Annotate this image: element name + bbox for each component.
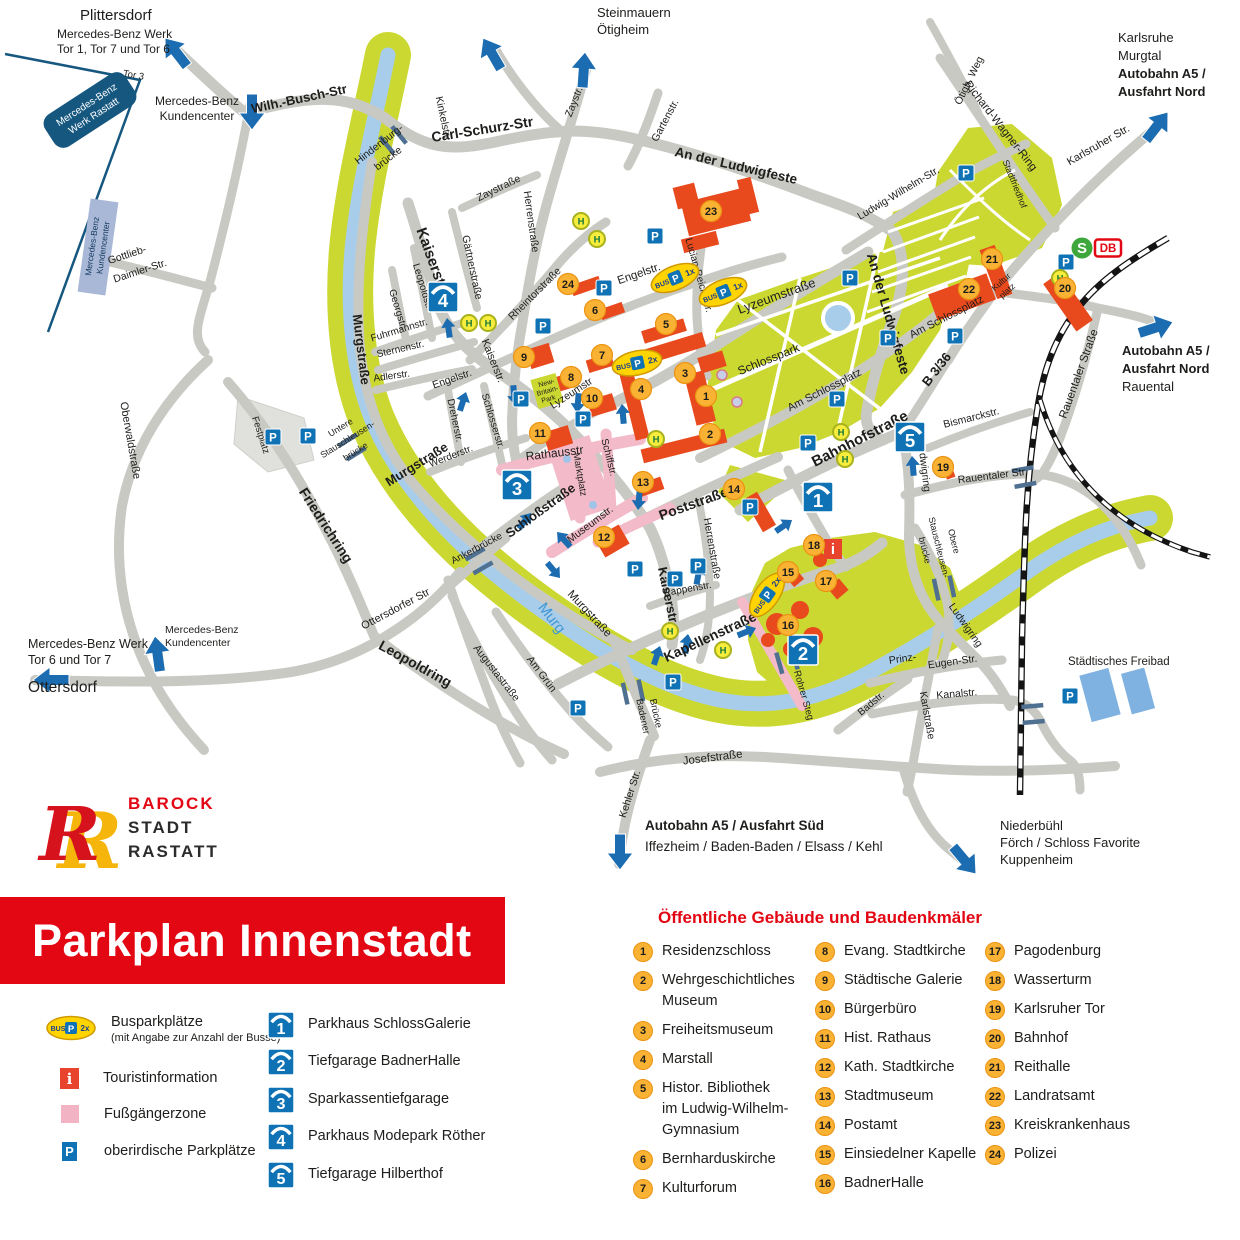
building-badge: 12	[815, 1058, 835, 1078]
building-item-10: 10Bürgerbüro	[815, 999, 1010, 1020]
garage-legend-label: Parkhaus SchlossGalerie	[308, 1016, 471, 1032]
bus-stop-icon: H	[833, 424, 849, 440]
destination-label: NiederbühlFörch / Schloss FavoriteKuppen…	[1000, 818, 1140, 867]
svg-text:17: 17	[820, 576, 832, 588]
poi-marker-14: 14	[724, 479, 745, 500]
building-badge: 9	[815, 971, 835, 991]
garage-legend-row-1: 1Parkhaus SchlossGalerie	[266, 1005, 485, 1043]
oneway-arrow	[772, 514, 796, 537]
svg-text:1: 1	[277, 1020, 286, 1038]
street-label: Josefstraße	[682, 748, 743, 767]
building-badge: 5	[633, 1079, 653, 1099]
building-badge: 24	[985, 1145, 1005, 1165]
svg-text:6: 6	[592, 305, 598, 317]
building-label: Kulturforum	[662, 1178, 737, 1199]
street-label: Oberwaldstraße	[117, 401, 142, 480]
oneway-arrow	[542, 558, 566, 582]
surface-parking-label: oberirdische Parkplätze	[104, 1143, 256, 1159]
garage-icon-2: 2	[788, 635, 818, 665]
svg-text:23: 23	[705, 206, 717, 218]
bus-stop-icon: H	[461, 315, 477, 331]
svg-text:P: P	[631, 565, 639, 577]
building-item-21: 21Reithalle	[985, 1057, 1195, 1078]
svg-text:4: 4	[277, 1132, 286, 1150]
svg-text:P: P	[651, 232, 659, 244]
svg-text:11: 11	[534, 428, 546, 440]
building-label: Bahnhof	[1014, 1028, 1068, 1049]
building-label: Histor. Bibliothekim Ludwig-Wilhelm-Gymn…	[662, 1078, 789, 1141]
svg-text:15: 15	[782, 567, 794, 579]
building-label: Städtische Galerie	[844, 970, 962, 991]
building-item-12: 12Kath. Stadtkirche	[815, 1057, 1010, 1078]
garage-icon-2: 2	[268, 1049, 294, 1075]
garage-icon-5: 5	[266, 1158, 296, 1190]
parking-icon: P	[570, 700, 586, 716]
svg-text:P: P	[884, 334, 892, 346]
garage-icon-3: 3	[268, 1087, 294, 1113]
building-badge: 18	[985, 971, 1005, 991]
building-badge: 20	[985, 1029, 1005, 1049]
svg-text:P: P	[1062, 258, 1070, 270]
building-item-7: 7Kulturforum	[633, 1178, 838, 1199]
tourist-info-label: Touristinformation	[103, 1070, 217, 1086]
svg-text:H: H	[653, 435, 660, 446]
building-label: Marstall	[662, 1049, 713, 1070]
poi-marker-8: 8	[561, 367, 582, 388]
svg-text:22: 22	[963, 284, 975, 296]
building-label: Kreiskrankenhaus	[1014, 1115, 1130, 1136]
svg-text:5: 5	[905, 430, 915, 451]
surface-parking-icon: P	[62, 1142, 77, 1161]
legend-touristinformation: i Touristinformation	[60, 1068, 217, 1089]
garage-icon-4: 4	[268, 1124, 294, 1150]
building-label: Landratsamt	[1014, 1086, 1095, 1107]
street-label: Obere	[946, 528, 962, 555]
svg-text:24: 24	[562, 279, 575, 291]
building-label: Hist. Rathaus	[844, 1028, 931, 1049]
building-item-19: 19Karlsruher Tor	[985, 999, 1195, 1020]
svg-text:16: 16	[782, 620, 794, 632]
garage-icon-5: 5	[895, 422, 925, 452]
building-label: WehrgeschichtlichesMuseum	[662, 970, 795, 1012]
parking-icon: P	[265, 429, 281, 445]
garage-icon-3: 3	[266, 1083, 296, 1115]
schlosspark-pond	[823, 303, 853, 333]
svg-text:3: 3	[682, 368, 688, 380]
poi-marker-16: 16	[778, 615, 799, 636]
bus-parking-sublabel: (mit Angabe zur Anzahl der Busse)	[111, 1032, 280, 1044]
poi-marker-11: 11	[530, 423, 551, 444]
building-label: Postamt	[844, 1115, 897, 1136]
svg-text:14: 14	[728, 484, 741, 496]
building-item-24: 24Polizei	[985, 1144, 1195, 1165]
svg-text:1: 1	[813, 490, 823, 511]
logo-r-red: R	[37, 792, 101, 878]
svg-text:BUS: BUS	[51, 1026, 66, 1033]
parking-icon: P	[958, 165, 974, 181]
svg-text:H: H	[720, 646, 727, 657]
bus-stop-icon: H	[480, 315, 496, 331]
building-badge: 22	[985, 1087, 1005, 1107]
building-label: Stadtmuseum	[844, 1086, 933, 1107]
poi-marker-2: 2	[700, 424, 721, 445]
garage-icon-5: 5	[268, 1162, 294, 1188]
bus-stop-icon: H	[715, 642, 731, 658]
svg-text:H: H	[838, 428, 845, 439]
building-item-5: 5Histor. Bibliothekim Ludwig-Wilhelm-Gym…	[633, 1078, 838, 1141]
parking-icon: P	[627, 561, 643, 577]
building-item-14: 14Postamt	[815, 1115, 1010, 1136]
poi-marker-9: 9	[514, 347, 535, 368]
db-icon: DB	[1095, 240, 1121, 257]
svg-text:21: 21	[986, 254, 998, 266]
street-label: Kehler Str.	[617, 769, 644, 819]
building-item-11: 11Hist. Rathaus	[815, 1028, 1010, 1049]
buildings-legend-title: Öffentliche Gebäude und Baudenkmäler	[658, 908, 982, 928]
poi-marker-24: 24	[558, 274, 579, 295]
building-item-22: 22Landratsamt	[985, 1086, 1195, 1107]
building-badge: 7	[633, 1179, 653, 1199]
parking-icon: P	[880, 330, 896, 346]
building-label: Freiheitsmuseum	[662, 1020, 773, 1041]
building-badge: 4	[633, 1050, 653, 1070]
destination-label: Mercedes-Benz WerkTor 1, Tor 7 und Tor 6	[57, 27, 173, 56]
street-label: Zaystr.	[563, 85, 586, 119]
garage-icon-2: 2	[266, 1045, 296, 1077]
buildings-col2: 8Evang. Stadtkirche9Städtische Galerie10…	[815, 941, 1010, 1202]
garage-legend-row-2: 2Tiefgarage BadnerHalle	[266, 1043, 485, 1081]
legend-oberirdische-parkplaetze: P oberirdische Parkplätze	[62, 1142, 256, 1161]
garage-icon-1: 1	[803, 482, 833, 512]
street-label: Wilh.-Busch-Str	[250, 81, 348, 116]
building-label: Karlsruher Tor	[1014, 999, 1105, 1020]
bus-stop-icon: H	[648, 431, 664, 447]
svg-text:H: H	[578, 217, 585, 228]
parking-icon: P	[513, 391, 529, 407]
buildings-col1: 1Residenzschloss2WehrgeschichtlichesMuse…	[633, 941, 838, 1207]
svg-text:H: H	[842, 455, 849, 466]
poi-marker-10: 10	[582, 388, 603, 409]
mercedes-kundencenter-box: Mercedes-BenzKundencenter	[78, 199, 119, 296]
svg-text:19: 19	[937, 462, 949, 474]
parking-icon: P	[690, 558, 706, 574]
poi-marker-22: 22	[959, 279, 980, 300]
building-label: Einsiedelner Kapelle	[844, 1144, 976, 1165]
buildings-col3: 17Pagodenburg18Wasserturm19Karlsruher To…	[985, 941, 1195, 1173]
poi-marker-7: 7	[592, 345, 613, 366]
svg-text:9: 9	[521, 352, 527, 364]
svg-text:2: 2	[798, 643, 808, 664]
mercedes-werk-box: Mercedes-BenzWerk Rastatt	[39, 68, 140, 152]
bus-stop-icon: H	[573, 213, 589, 229]
building-badge: 11	[815, 1029, 835, 1049]
building-badge: 10	[815, 1000, 835, 1020]
destination-label: SteinmauernÖtigheim	[597, 5, 671, 37]
svg-text:DB: DB	[1100, 243, 1117, 255]
destination-label: Autobahn A5 /Ausfahrt NordRauental	[1122, 343, 1210, 394]
destination-label: Ottersdorf	[28, 679, 98, 696]
svg-text:P: P	[694, 562, 702, 574]
building-label: Reithalle	[1014, 1057, 1070, 1078]
poi-marker-5: 5	[656, 314, 677, 335]
svg-text:20: 20	[1059, 283, 1071, 295]
building-badge: 13	[815, 1087, 835, 1107]
svg-text:P: P	[579, 415, 587, 427]
svg-text:P: P	[951, 332, 959, 344]
building-label: Bernharduskirche	[662, 1149, 776, 1170]
svg-text:P: P	[833, 395, 841, 407]
pedestrian-zone-icon	[61, 1105, 79, 1123]
parking-icon: P	[647, 228, 663, 244]
svg-text:P: P	[804, 439, 812, 451]
poi-marker-21: 21	[982, 249, 1003, 270]
page-title: Parkplan Innenstadt	[32, 915, 472, 967]
legend-fussgaengerzone: Fußgängerzone	[61, 1105, 206, 1123]
building-label: Wasserturm	[1014, 970, 1092, 991]
building-item-1: 1Residenzschloss	[633, 941, 838, 962]
building-badge: 19	[985, 1000, 1005, 1020]
building-item-18: 18Wasserturm	[985, 970, 1195, 991]
bus-stop-icon: H	[837, 451, 853, 467]
building-item-9: 9Städtische Galerie	[815, 970, 1010, 991]
bus-parking-icon: BUS P 2x	[45, 1014, 99, 1042]
parking-icon: P	[842, 270, 858, 286]
building-badge: 1	[633, 942, 653, 962]
svg-text:1: 1	[703, 391, 709, 403]
building-label: Pagodenburg	[1014, 941, 1101, 962]
svg-text:13: 13	[637, 477, 649, 489]
building-badge: 21	[985, 1058, 1005, 1078]
svg-text:2: 2	[707, 429, 713, 441]
garage-legend-label: Sparkassentiefgarage	[308, 1091, 449, 1107]
building-badge: 23	[985, 1116, 1005, 1136]
svg-text:10: 10	[586, 393, 598, 405]
garage-icon-3: 3	[502, 470, 532, 500]
parkplan-poster: Mercedes-BenzWerk RastattMercedes-BenzKu…	[0, 0, 1240, 1240]
building-label: BadnerHalle	[844, 1173, 924, 1194]
sbahn-icon: S	[1072, 238, 1093, 259]
building-item-16: 16BadnerHalle	[815, 1173, 1010, 1194]
street-label: Poststraße	[657, 483, 731, 523]
poi-marker-3: 3	[675, 363, 696, 384]
garage-icon-4: 4	[428, 282, 458, 312]
svg-text:5: 5	[663, 319, 669, 331]
building-badge: 15	[815, 1145, 835, 1165]
tourist-info-icon: i	[60, 1068, 79, 1089]
parking-icon: P	[800, 435, 816, 451]
poi-marker-4: 4	[631, 379, 652, 400]
svg-text:P: P	[1066, 692, 1074, 704]
svg-text:P: P	[962, 169, 970, 181]
svg-text:12: 12	[598, 532, 610, 544]
svg-text:7: 7	[599, 350, 605, 362]
building-item-8: 8Evang. Stadtkirche	[815, 941, 1010, 962]
poi-marker-13: 13	[633, 472, 654, 493]
poi-marker-18: 18	[804, 535, 825, 556]
bus-stop-icon: H	[662, 623, 678, 639]
svg-text:S: S	[1077, 240, 1087, 257]
svg-text:H: H	[594, 235, 601, 246]
street-label: Schlosserstr.	[479, 392, 506, 450]
parking-icon: P	[742, 499, 758, 515]
parking-icon: P	[535, 318, 551, 334]
building-label: Kath. Stadtkirche	[844, 1057, 954, 1078]
svg-text:P: P	[846, 274, 854, 286]
building-label: Bürgerbüro	[844, 999, 917, 1020]
legend-busparkplaetze: BUS P 2x Busparkplätze (mit Angabe zur A…	[45, 1014, 280, 1044]
city-map: Mercedes-BenzWerk RastattMercedes-BenzKu…	[0, 0, 1240, 895]
svg-text:18: 18	[808, 540, 820, 552]
svg-text:4: 4	[638, 384, 645, 396]
poi-marker-6: 6	[585, 300, 606, 321]
street-label: Leopoldring	[376, 637, 455, 690]
building-item-2: 2WehrgeschichtlichesMuseum	[633, 970, 838, 1012]
garage-legend: 1Parkhaus SchlossGalerie2Tiefgarage Badn…	[266, 1005, 485, 1193]
svg-text:8: 8	[568, 372, 574, 384]
building-label: Residenzschloss	[662, 941, 771, 962]
parking-icon: P	[665, 674, 681, 690]
svg-text:2: 2	[277, 1057, 286, 1075]
poi-marker-19: 19	[933, 457, 954, 478]
building-item-4: 4Marstall	[633, 1049, 838, 1070]
tourist-info-icon: i	[824, 539, 842, 559]
svg-text:P: P	[539, 322, 547, 334]
bus-stop-icon: H	[589, 231, 605, 247]
logo-monogram: R R	[28, 778, 123, 878]
svg-text:P: P	[600, 284, 608, 296]
parking-icon: P	[829, 391, 845, 407]
poi-marker-15: 15	[778, 562, 799, 583]
destination-label: Städtisches Freibad	[1068, 656, 1170, 668]
svg-text:P: P	[68, 1024, 75, 1035]
building-item-3: 3Freiheitsmuseum	[633, 1020, 838, 1041]
building-item-20: 20Bahnhof	[985, 1028, 1195, 1049]
destination-label: Mercedes-BenzKundencenter	[155, 94, 239, 123]
svg-text:P: P	[671, 575, 679, 587]
garage-icon-1: 1	[266, 1008, 296, 1040]
logo-line2: STADT	[128, 816, 219, 840]
garage-legend-label: Tiefgarage BadnerHalle	[308, 1053, 461, 1069]
logo-line3: RASTATT	[128, 840, 219, 864]
direction-arrow	[607, 834, 633, 870]
building-badge: 2	[633, 971, 653, 991]
svg-text:i: i	[831, 541, 835, 558]
garage-icon-1: 1	[268, 1012, 294, 1038]
title-banner: Parkplan Innenstadt	[0, 897, 505, 984]
parking-icon: P	[1062, 688, 1078, 704]
street-label: Friedrichring	[296, 485, 356, 566]
bus-parking-label: Busparkplätze	[111, 1014, 280, 1030]
garage-icon-4: 4	[266, 1120, 296, 1152]
svg-text:H: H	[667, 627, 674, 638]
poi-marker-23: 23	[701, 201, 722, 222]
building-badge: 17	[985, 942, 1005, 962]
svg-text:3: 3	[512, 478, 522, 499]
svg-text:2x: 2x	[81, 1024, 90, 1033]
destination-label: KarlsruheMurgtalAutobahn A5 /Ausfahrt No…	[1118, 30, 1206, 99]
logo-line1: BAROCK	[128, 792, 219, 816]
building-label: Evang. Stadtkirche	[844, 941, 966, 962]
building-badge: 6	[633, 1150, 653, 1170]
barock-stadt-rastatt-logo: R R BAROCK STADT RASTATT	[28, 778, 258, 883]
svg-text:3: 3	[277, 1095, 286, 1113]
destination-label: Plittersdorf	[80, 7, 153, 24]
building-item-15: 15Einsiedelner Kapelle	[815, 1144, 1010, 1165]
building-item-17: 17Pagodenburg	[985, 941, 1195, 962]
svg-text:H: H	[485, 319, 492, 330]
svg-text:P: P	[269, 433, 277, 445]
svg-text:P: P	[574, 704, 582, 716]
parking-icon: P	[596, 280, 612, 296]
garage-legend-row-3: 3Sparkassentiefgarage	[266, 1080, 485, 1118]
parking-icon: P	[575, 411, 591, 427]
poi-marker-12: 12	[594, 527, 615, 548]
destination-label: Autobahn A5 / Ausfahrt SüdIffezheim / Ba…	[645, 818, 883, 854]
destination-label: Mercedes-BenzKundencenter	[165, 624, 239, 649]
direction-arrow	[570, 51, 598, 89]
street-label: Am Grün	[524, 654, 559, 695]
street-label: An der Ludwigfeste	[673, 144, 799, 187]
parking-icon: P	[667, 571, 683, 587]
building-item-13: 13Stadtmuseum	[815, 1086, 1010, 1107]
garage-legend-label: Tiefgarage Hilberthof	[308, 1166, 443, 1182]
svg-text:P: P	[517, 395, 525, 407]
poi-marker-1: 1	[696, 386, 717, 407]
poi-marker-17: 17	[816, 571, 837, 592]
svg-text:P: P	[669, 678, 677, 690]
street-label: Rauentaler Str.	[957, 466, 1028, 486]
street-label: Zaystraße	[475, 172, 523, 204]
garage-legend-row-5: 5Tiefgarage Hilberthof	[266, 1155, 485, 1193]
svg-text:4: 4	[438, 290, 449, 311]
street-label: Rauentaler Straße	[1057, 328, 1100, 420]
garage-legend-label: Parkhaus Modepark Röther	[308, 1128, 485, 1144]
parking-icon: P	[1058, 254, 1074, 270]
building-badge: 16	[815, 1174, 835, 1194]
pedestrian-zone-label: Fußgängerzone	[104, 1106, 206, 1122]
garage-legend-row-4: 4Parkhaus Modepark Röther	[266, 1118, 485, 1156]
svg-text:P: P	[746, 503, 754, 515]
destination-label: Mercedes-Benz WerkTor 6 und Tor 7	[28, 637, 149, 667]
parking-icon: P	[300, 428, 316, 444]
building-badge: 8	[815, 942, 835, 962]
building-item-6: 6Bernharduskirche	[633, 1149, 838, 1170]
building-label: Polizei	[1014, 1144, 1057, 1165]
building-item-23: 23Kreiskrankenhaus	[985, 1115, 1195, 1136]
svg-text:H: H	[466, 319, 473, 330]
parking-icon: P	[947, 328, 963, 344]
svg-text:P: P	[304, 432, 312, 444]
building-badge: 3	[633, 1021, 653, 1041]
building-badge: 14	[815, 1116, 835, 1136]
svg-text:5: 5	[277, 1170, 286, 1188]
poi-marker-20: 20	[1055, 278, 1076, 299]
